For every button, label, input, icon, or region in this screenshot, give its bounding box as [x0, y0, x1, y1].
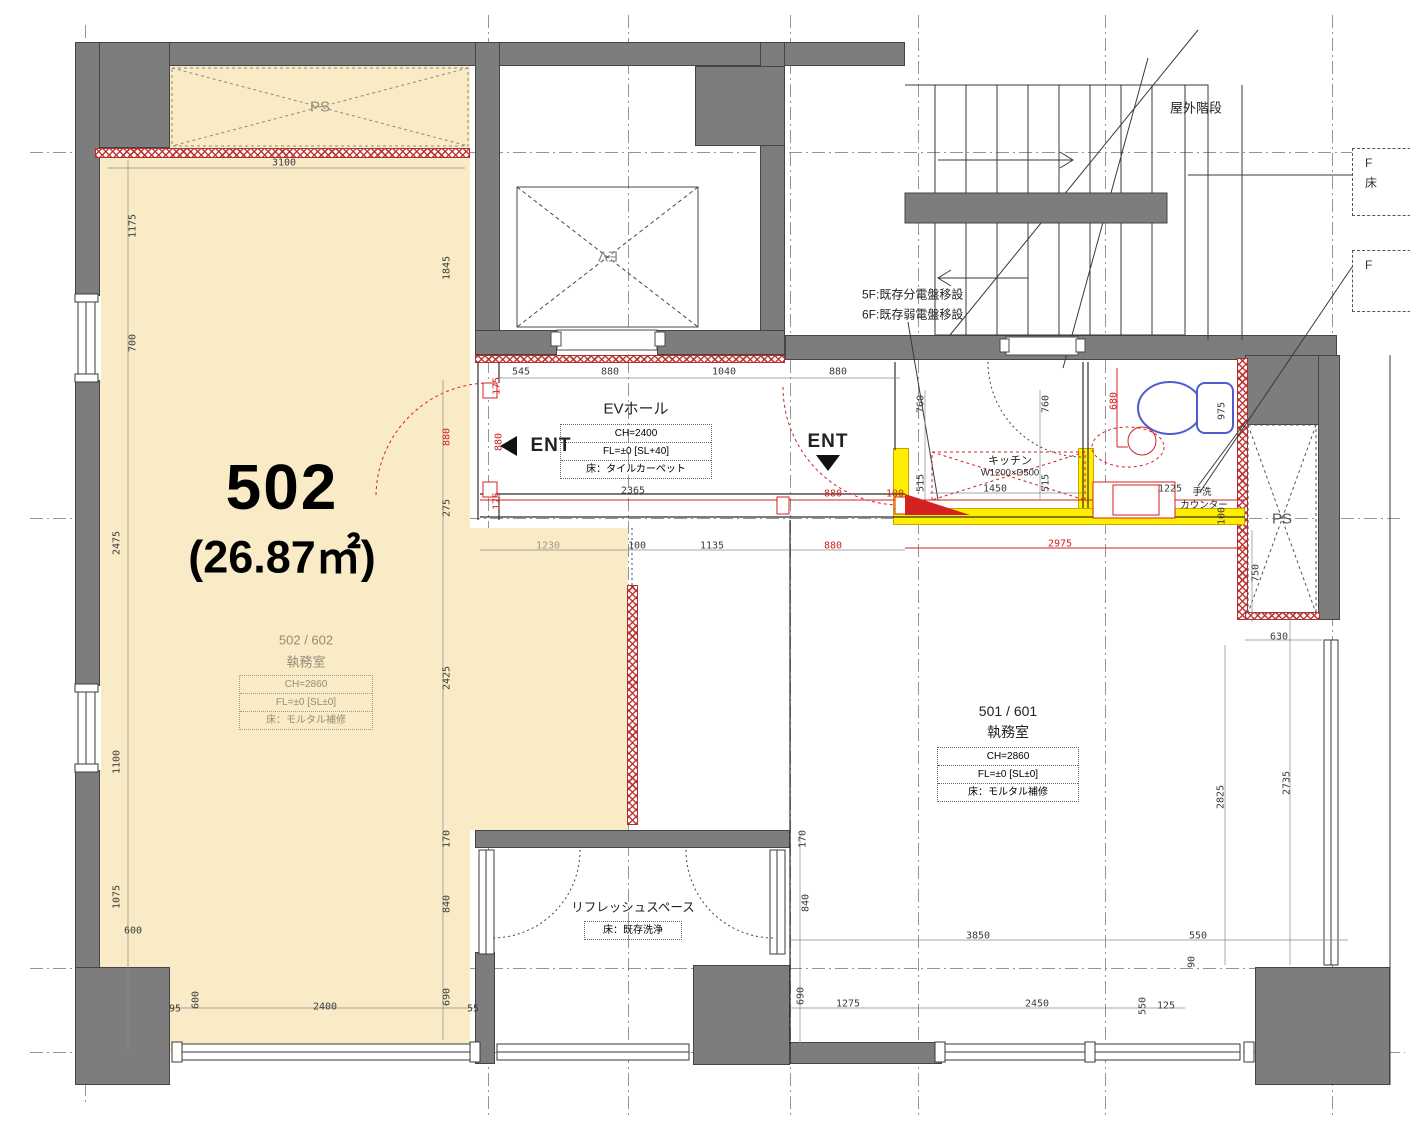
dimension-label: 515 — [1041, 474, 1052, 492]
dimension-label: 125 — [1157, 1001, 1175, 1012]
dimension-label: 2475 — [112, 531, 123, 555]
outdoor-stairs-label: 屋外階段 — [1170, 98, 1222, 117]
dimension-label: 170 — [798, 830, 809, 848]
annotation-line: F — [1365, 153, 1410, 173]
dimension-label: 880 — [824, 541, 842, 552]
dimension-label: 690 — [442, 988, 453, 1006]
spec-fl: FL=±0 [SL±0] — [938, 765, 1078, 783]
dimension-label: 100 — [1217, 507, 1228, 525]
dimension-label: 690 — [796, 987, 807, 1005]
dimension-label: 3100 — [272, 158, 296, 169]
dimension-label: 2825 — [1216, 785, 1227, 809]
dimension-label: 55 — [467, 1004, 479, 1015]
dimension-label: 1230 — [536, 541, 560, 552]
dimension-label: 170 — [442, 830, 453, 848]
spec-ch: CH=2860 — [938, 748, 1078, 765]
dimension-label: 600 — [191, 991, 202, 1009]
dimension-label: 1175 — [128, 214, 139, 238]
dimension-label: 760 — [1041, 395, 1052, 413]
dimension-label: 700 — [128, 334, 139, 352]
kitchen-name: キッチン — [988, 452, 1032, 468]
dimension-label: 2975 — [1048, 539, 1072, 550]
ent-left-label: ENT — [531, 435, 572, 457]
dimension-lines — [108, 160, 1348, 1050]
dimension-label: 880 — [442, 428, 453, 446]
spec-fl: FL=±0 [SL±0] — [240, 693, 372, 711]
dimension-label: 100 — [886, 489, 904, 500]
dimension-label: 2450 — [1025, 999, 1049, 1010]
dimension-label: 1135 — [700, 541, 724, 552]
spec-floor: 床：既存洗浄 — [585, 922, 681, 939]
dimension-label: 550 — [1189, 931, 1207, 942]
note-6f: 6F:既存弱電盤移設 — [862, 306, 963, 323]
unit-number: 502 — [226, 450, 339, 524]
dimension-label: 760 — [916, 395, 927, 413]
dimension-label: 840 — [442, 895, 453, 913]
dimension-label: 3850 — [966, 931, 990, 942]
dimension-label: 880 — [601, 367, 619, 378]
refresh-space-specs: 床：既存洗浄 — [584, 921, 682, 940]
room-502-type: 執務室 — [286, 652, 325, 671]
ps-right-label: PS — [1272, 511, 1292, 528]
dimension-label: 1040 — [712, 367, 736, 378]
dimension-label: 880 — [824, 489, 842, 500]
dimension-label: 1225 — [1158, 484, 1182, 495]
annotation-box-2: F — [1352, 250, 1410, 312]
dimension-label: 630 — [1270, 632, 1288, 643]
annotation-line: F — [1365, 255, 1410, 275]
unit-area: (26.87㎡) — [188, 521, 376, 586]
stairs-landing — [905, 193, 1167, 223]
note-5f: 5F:既存分電盤移設 — [862, 286, 963, 303]
spec-fl: FL=±0 [SL+40] — [561, 442, 711, 460]
room-501-name: 501 / 601 — [979, 703, 1037, 719]
ent-right-label: ENT — [808, 431, 849, 453]
refresh-space-name: リフレッシュスペース — [571, 897, 695, 916]
dimension-label: 545 — [512, 367, 530, 378]
room-502-name: 502 / 602 — [279, 633, 333, 648]
dimension-label: 90 — [1187, 956, 1198, 968]
dimension-label: 975 — [1217, 402, 1228, 420]
counter-label-1: 手洗 — [1192, 484, 1211, 498]
dimension-label: 2365 — [621, 486, 645, 497]
spec-floor: 床：タイルカーペット — [561, 460, 711, 478]
ev-hall-name: EVホール — [603, 398, 668, 419]
dimension-label: 1100 — [112, 750, 123, 774]
ent-right-arrow-icon — [816, 455, 840, 471]
annotation-line: 床 — [1365, 173, 1410, 193]
spec-floor: 床：モルタル補修 — [240, 711, 372, 729]
dimension-label: 750 — [1251, 564, 1262, 582]
dimension-label: 840 — [801, 894, 812, 912]
dimension-label: 880 — [829, 367, 847, 378]
leader-lines — [908, 175, 1390, 1085]
dimension-label: 95 — [169, 1004, 181, 1015]
ps-top-label: PS — [310, 99, 330, 116]
spec-ch: CH=2860 — [240, 676, 372, 693]
spec-ch: CH=2400 — [561, 425, 711, 442]
dimension-label: 175 — [492, 492, 503, 510]
dimension-label: 1845 — [442, 256, 453, 280]
dimension-label: 2400 — [313, 1002, 337, 1013]
room-502-specs: CH=2860 FL=±0 [SL±0] 床：モルタル補修 — [239, 675, 373, 730]
annotation-box-1: F 床 — [1352, 148, 1410, 216]
dimension-label: 550 — [1138, 997, 1149, 1015]
dimension-label: 100 — [628, 541, 646, 552]
floor-plan: 502 (26.87㎡) 502 / 602 執務室 CH=2860 FL=±0… — [0, 0, 1410, 1130]
kitchen-size: W1200×D500 — [981, 468, 1039, 479]
window — [172, 1042, 1254, 1062]
window — [73, 294, 101, 772]
dimension-label: 2425 — [442, 666, 453, 690]
dimension-label: 2735 — [1282, 771, 1293, 795]
window — [479, 640, 1338, 965]
ev-hall-specs: CH=2400 FL=±0 [SL+40] 床：タイルカーペット — [560, 424, 712, 479]
dimension-label: 680 — [1109, 392, 1120, 410]
dimension-label: 600 — [124, 926, 142, 937]
room-501-type: 執務室 — [987, 722, 1029, 742]
ev-label: EV — [598, 248, 618, 265]
spec-floor: 床：モルタル補修 — [938, 783, 1078, 801]
dimension-label: 880 — [494, 433, 505, 451]
dimension-label: 1450 — [983, 484, 1007, 495]
room-501-specs: CH=2860 FL=±0 [SL±0] 床：モルタル補修 — [937, 747, 1079, 802]
dimension-label: 1275 — [836, 999, 860, 1010]
dimension-label: 175 — [492, 377, 503, 395]
dimension-label: 275 — [442, 499, 453, 517]
dimension-label: 1075 — [112, 885, 123, 909]
dimension-label: 515 — [916, 474, 927, 492]
